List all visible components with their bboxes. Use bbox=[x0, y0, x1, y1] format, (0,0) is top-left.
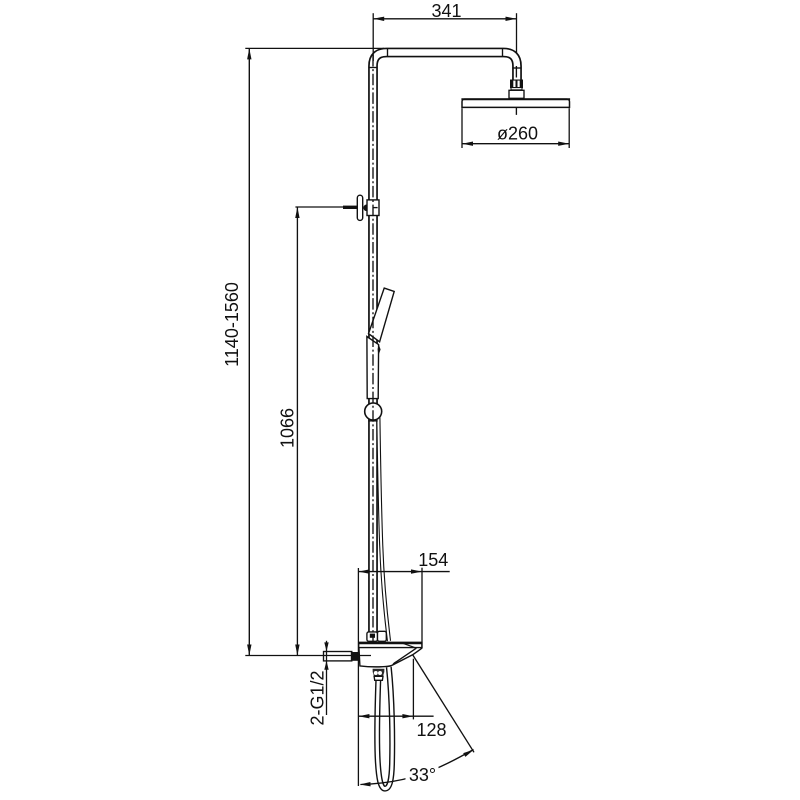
svg-text:1066: 1066 bbox=[278, 408, 298, 448]
svg-text:2-G1/2: 2-G1/2 bbox=[307, 670, 327, 725]
svg-text:33°: 33° bbox=[409, 765, 436, 785]
svg-text:128: 128 bbox=[416, 720, 446, 740]
svg-text:1140-1560: 1140-1560 bbox=[222, 282, 242, 367]
svg-text:341: 341 bbox=[431, 1, 461, 21]
svg-text:ø260: ø260 bbox=[497, 124, 538, 144]
svg-text:154: 154 bbox=[418, 550, 448, 570]
